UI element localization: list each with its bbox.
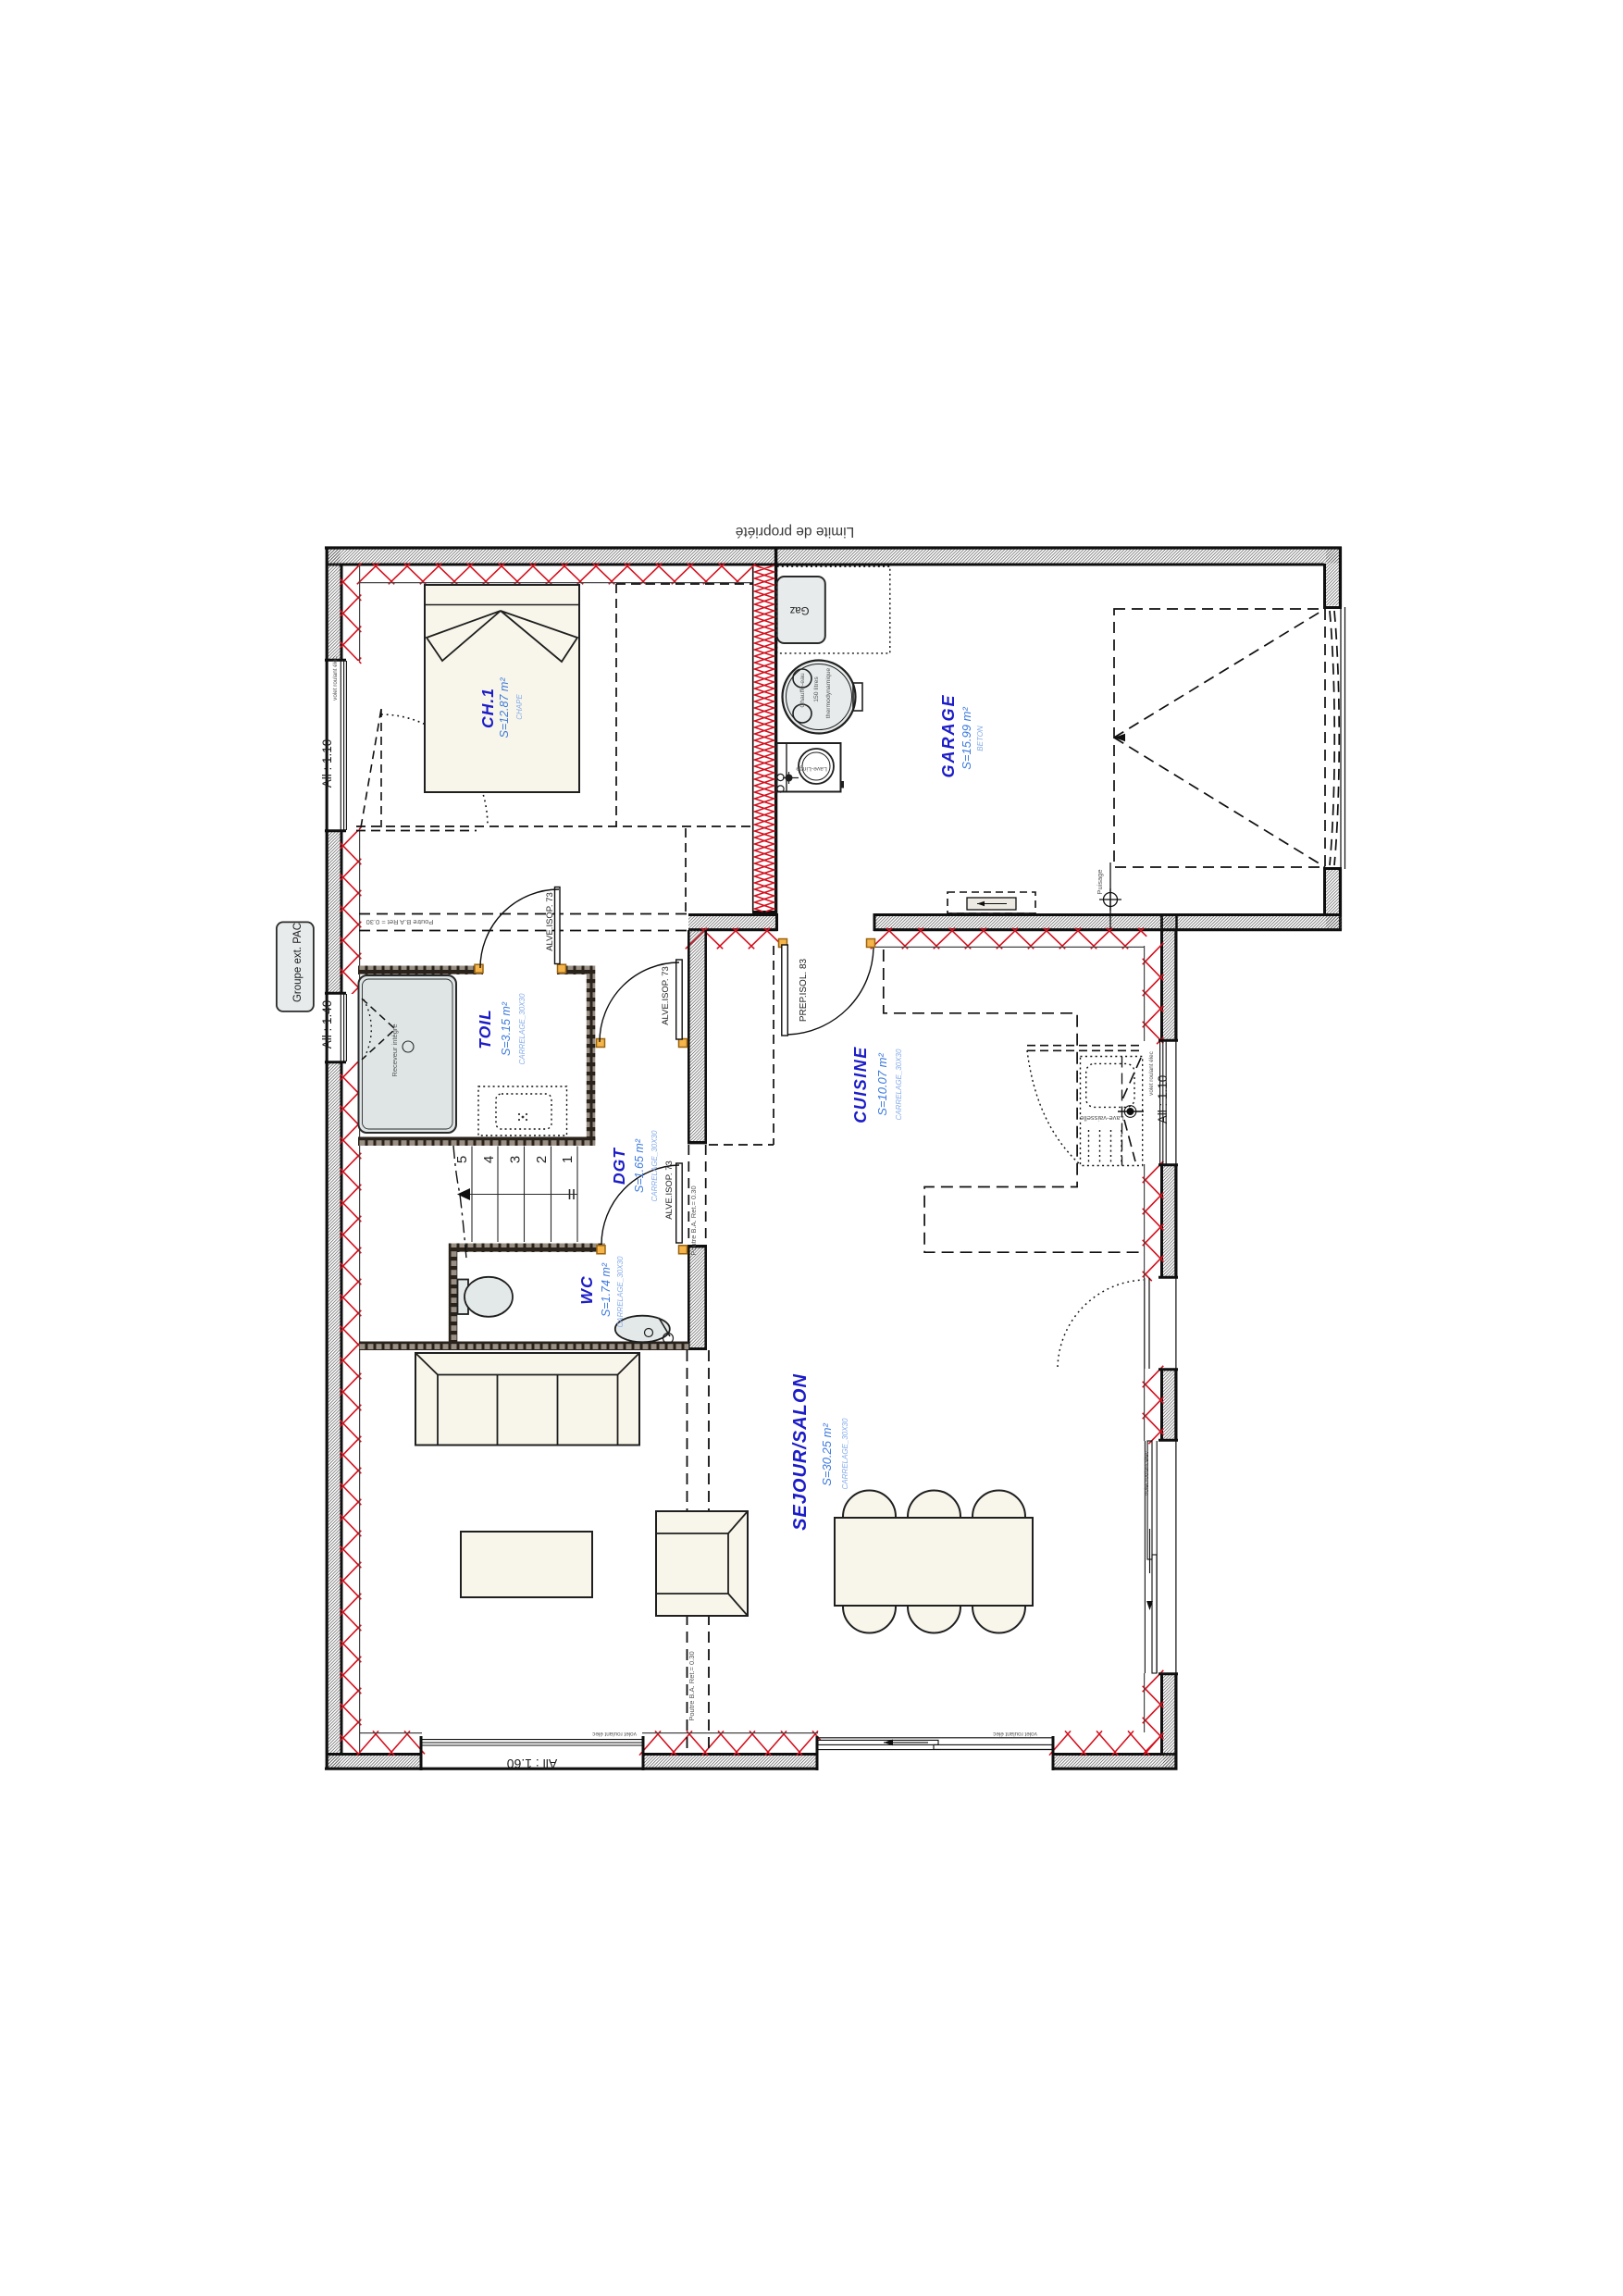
svg-text:Lave-vaisselle: Lave-vaisselle xyxy=(1080,1114,1124,1123)
svg-text:WC: WC xyxy=(577,1275,596,1304)
svg-text:GARAGE: GARAGE xyxy=(939,693,958,777)
svg-text:All : 1.40: All : 1.40 xyxy=(320,1000,334,1049)
svg-text:S=10.07 m²: S=10.07 m² xyxy=(875,1053,889,1116)
svg-text:Poutre B.A. Ret.= 0.30: Poutre B.A. Ret.= 0.30 xyxy=(689,1185,698,1255)
svg-text:BETON: BETON xyxy=(976,726,985,751)
svg-text:CH.1: CH.1 xyxy=(478,688,497,728)
svg-text:1: 1 xyxy=(560,1156,576,1163)
svg-text:ALVE.ISOP. 73: ALVE.ISOP. 73 xyxy=(661,966,671,1025)
svg-text:CARRELAGE_30X30: CARRELAGE_30X30 xyxy=(841,1418,849,1489)
svg-text:Poutre B.A. Ret.= 0.30: Poutre B.A. Ret.= 0.30 xyxy=(688,1651,696,1720)
svg-text:4: 4 xyxy=(481,1156,497,1163)
svg-text:CARRELAGE_30X30: CARRELAGE_30X30 xyxy=(895,1049,903,1120)
svg-text:150 litres: 150 litres xyxy=(813,676,820,702)
svg-text:All : 1.10: All : 1.10 xyxy=(320,739,334,788)
svg-text:S=3.15 m²: S=3.15 m² xyxy=(500,1001,513,1056)
svg-text:TOIL: TOIL xyxy=(476,1009,494,1049)
svg-text:thermodynamique: thermodynamique xyxy=(825,668,832,719)
svg-text:Gaz: Gaz xyxy=(789,604,809,615)
svg-text:Puisage: Puisage xyxy=(1096,869,1104,894)
svg-text:Groupe ext. PAC: Groupe ext. PAC xyxy=(292,923,304,1002)
svg-text:volet roulant élec: volet roulant élec xyxy=(592,1731,637,1737)
svg-text:3: 3 xyxy=(508,1156,524,1163)
svg-text:CARRELAGE_30X30: CARRELAGE_30X30 xyxy=(616,1256,625,1327)
svg-text:ALVE.ISOP. 73: ALVE.ISOP. 73 xyxy=(545,892,555,951)
svg-text:2: 2 xyxy=(534,1156,550,1163)
svg-text:PREP.ISOL. 83: PREP.ISOL. 83 xyxy=(799,958,809,1022)
svg-text:CHAPE: CHAPE xyxy=(515,694,524,720)
svg-text:Poutre B.A Ret = 0.30: Poutre B.A Ret = 0.30 xyxy=(366,918,434,926)
svg-text:Chauffe-eau: Chauffe-eau xyxy=(799,673,806,708)
svg-text:S=1.74 m²: S=1.74 m² xyxy=(600,1262,613,1317)
svg-text:S=30.25 m²: S=30.25 m² xyxy=(820,1423,834,1486)
svg-text:volet roulant élec: volet roulant élec xyxy=(1148,1051,1155,1096)
svg-text:ALVE.ISOP. 73: ALVE.ISOP. 73 xyxy=(664,1160,675,1220)
svg-text:volet roulant élec: volet roulant élec xyxy=(1144,1451,1150,1496)
svg-text:Lave-Linge: Lave-Linge xyxy=(796,765,827,772)
svg-text:Limite de propriété: Limite de propriété xyxy=(736,524,854,540)
svg-text:SEJOUR/SALON: SEJOUR/SALON xyxy=(790,1373,811,1531)
svg-text:S=12.87 m²: S=12.87 m² xyxy=(498,677,511,738)
svg-text:S=1.65 m²: S=1.65 m² xyxy=(633,1138,646,1193)
svg-text:CARRELAGE_30X30: CARRELAGE_30X30 xyxy=(650,1130,659,1201)
svg-text:CUISINE: CUISINE xyxy=(851,1046,870,1123)
svg-text:DGT: DGT xyxy=(610,1148,628,1185)
svg-text:S=15.99 m²: S=15.99 m² xyxy=(960,707,973,770)
svg-text:volet roulant élec: volet roulant élec xyxy=(993,1731,1037,1737)
svg-text:CARRELAGE_30X30: CARRELAGE_30X30 xyxy=(518,993,527,1064)
svg-text:All : 1.10: All : 1.10 xyxy=(1156,1075,1170,1124)
svg-text:volet roulant élec: volet roulant élec xyxy=(332,656,339,701)
svg-text:All : 1.60: All : 1.60 xyxy=(507,1756,558,1771)
svg-text:5: 5 xyxy=(454,1156,470,1163)
